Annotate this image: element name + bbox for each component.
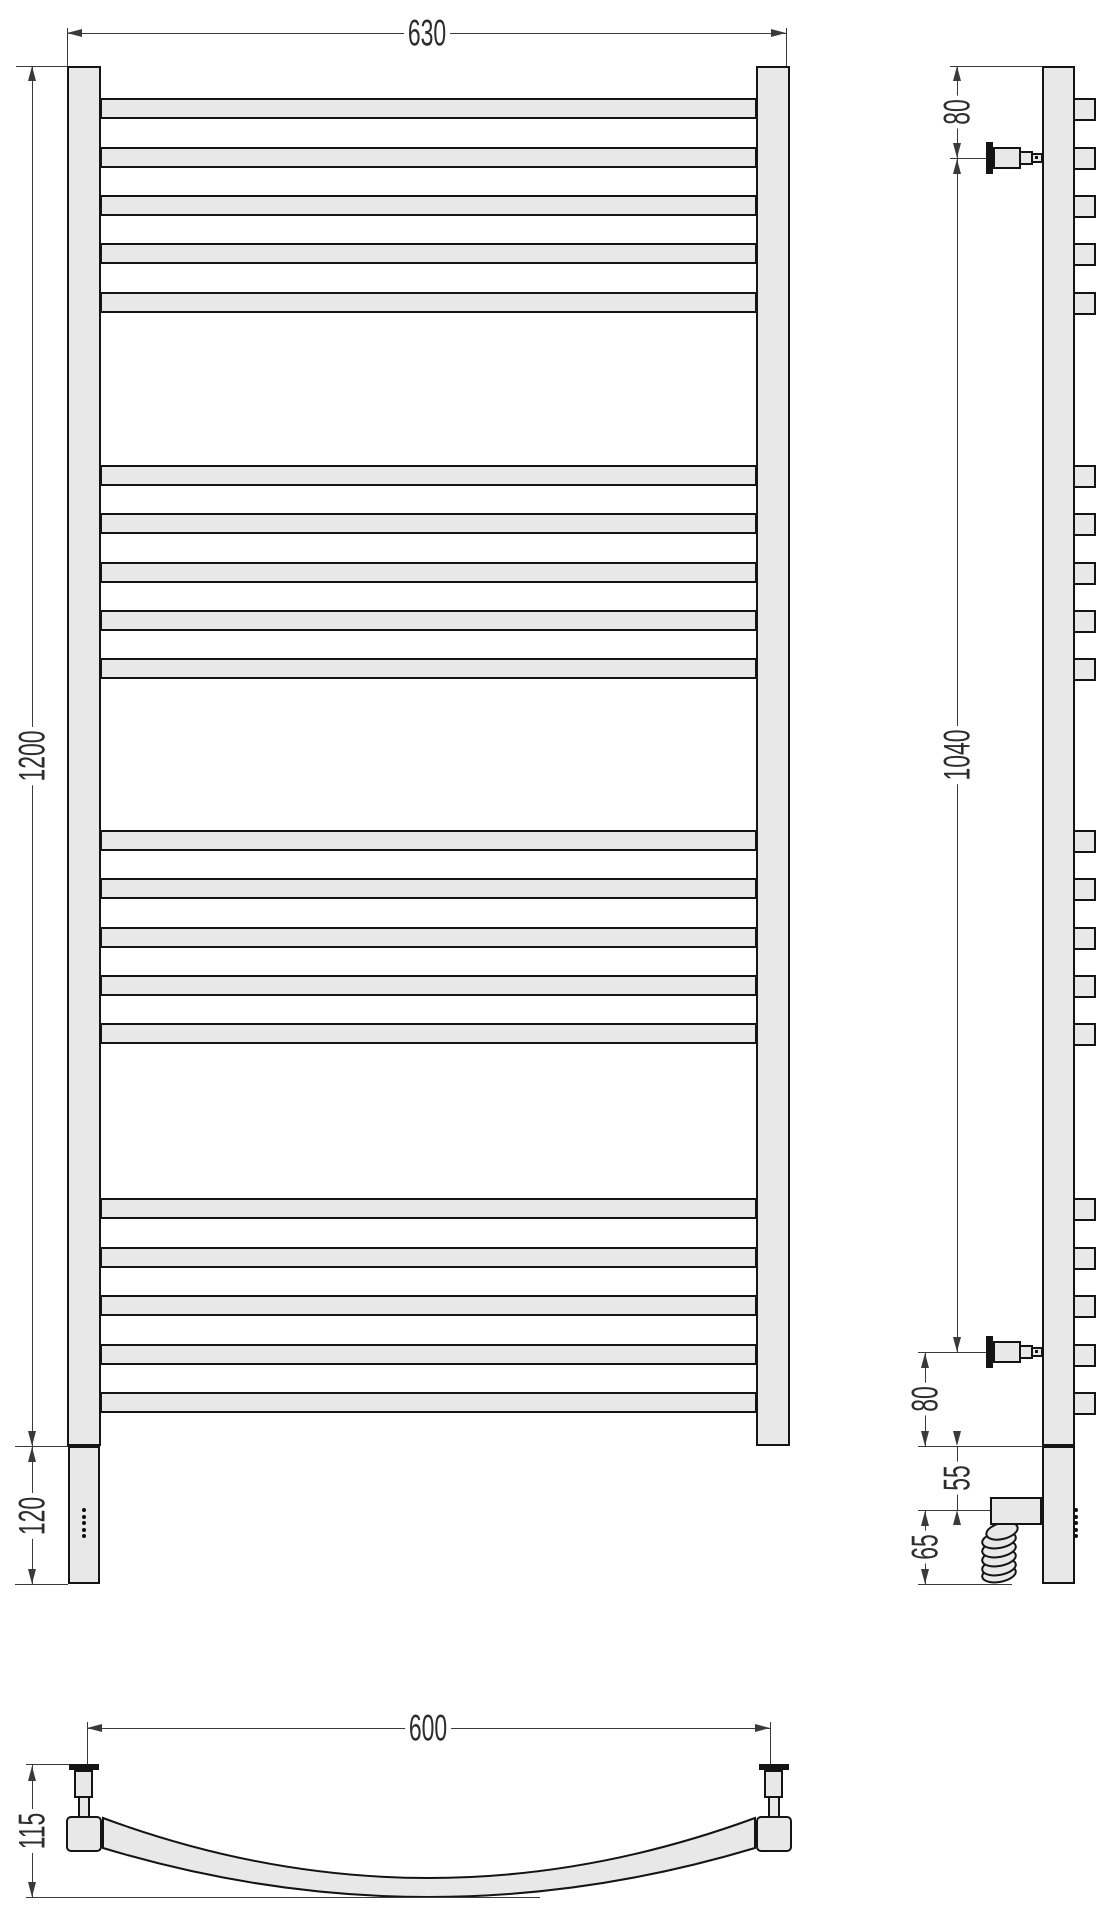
arrow-65-up <box>921 1511 929 1526</box>
rung <box>100 975 757 996</box>
lower-bracket-flange <box>986 1336 993 1368</box>
arrow-120-top <box>28 1447 36 1462</box>
arrow-115-up <box>28 1766 36 1781</box>
heater-indicator-dot <box>1074 1508 1078 1512</box>
dim-label-heater-element: 65 <box>905 1531 946 1564</box>
arrow-1040-down <box>953 1337 961 1352</box>
side-heater-section <box>1042 1446 1075 1584</box>
rung <box>100 292 757 313</box>
arrow-115-down <box>28 1882 36 1897</box>
bottom-right-corner-block <box>756 1816 792 1852</box>
dim-label-heater-section: 120 <box>12 1493 53 1539</box>
heater-indicator-dot <box>82 1515 86 1519</box>
rung <box>100 658 757 679</box>
upper-bracket-body <box>993 147 1021 169</box>
lower-bracket-body <box>993 1341 1021 1363</box>
front-right-post <box>756 66 790 1446</box>
upper-bracket-pin <box>1035 156 1038 159</box>
arrow-55-top-outside <box>953 1431 961 1446</box>
rung <box>100 1344 757 1365</box>
rung <box>100 98 757 119</box>
front-left-post <box>67 66 101 1446</box>
bottom-left-bracket-neck <box>78 1796 90 1818</box>
arrow-55-bottom-outside <box>953 1510 961 1525</box>
heater-indicator-dot <box>82 1534 86 1538</box>
arrow-top80-up <box>953 66 961 81</box>
heater-cartridge-housing <box>990 1497 1042 1525</box>
rung <box>100 513 757 534</box>
rung <box>100 465 757 486</box>
arrow-bottom80-down <box>921 1431 929 1446</box>
bottom-right-bracket-neck <box>768 1796 780 1818</box>
dim-label-overall-height: 1200 <box>12 727 53 785</box>
rung <box>100 1023 757 1044</box>
ext-line-post-bottom-side <box>918 1446 1042 1447</box>
arrow-bottom80-up <box>921 1353 929 1368</box>
arrow-600-right <box>755 1724 770 1732</box>
ext-line-120-bottom <box>15 1584 68 1585</box>
rung <box>100 878 757 899</box>
ext-line-115-bottom <box>26 1897 540 1898</box>
bottom-left-bracket-body <box>74 1770 93 1798</box>
rung <box>100 610 757 631</box>
bottom-left-corner-block <box>66 1816 102 1852</box>
bottom-right-bracket-body <box>764 1770 783 1798</box>
arrow-120-bottom <box>28 1569 36 1584</box>
dim-label-mount-centers: 600 <box>405 1708 451 1749</box>
heater-indicator-dot <box>82 1528 86 1532</box>
upper-bracket-flange <box>986 142 993 174</box>
rung <box>100 927 757 948</box>
curved-shapes-layer <box>0 0 1116 1920</box>
arrow-65-down <box>921 1569 929 1584</box>
rung <box>100 1198 757 1219</box>
rung <box>100 1295 757 1316</box>
ext-line-top80-top <box>950 66 1042 67</box>
dim-label-union-section: 55 <box>937 1462 978 1495</box>
heater-indicator-dot <box>1074 1515 1078 1519</box>
lower-bracket-pin <box>1035 1350 1038 1353</box>
arrow-600-left <box>87 1724 102 1732</box>
dim-label-overall-width: 630 <box>404 13 450 54</box>
heater-cable-coil <box>981 1519 1020 1584</box>
rung <box>100 147 757 168</box>
arrow-630-right <box>771 29 786 37</box>
arrow-top80-down <box>953 143 961 158</box>
heater-indicator-dot <box>82 1521 86 1525</box>
ext-line-1200-top <box>16 66 67 67</box>
dim-line-80-1040 <box>957 66 958 1352</box>
towel-rail-dimension-drawing: 630 1200 120 80 1040 80 55 <box>0 0 1116 1920</box>
bowed-tube-bottom-view <box>103 1818 755 1897</box>
rung <box>100 1392 757 1413</box>
ext-line-630-right <box>786 28 787 66</box>
rung <box>100 830 757 851</box>
dim-label-depth: 115 <box>12 1809 53 1853</box>
arrow-1200-bottom <box>28 1431 36 1446</box>
ext-line-600-right <box>770 1722 771 1764</box>
heater-indicator-dot <box>1074 1528 1078 1532</box>
rung <box>100 1247 757 1268</box>
rung <box>100 562 757 583</box>
dim-label-top-bracket-offset: 80 <box>937 96 978 129</box>
dim-label-bottom-bracket-offset: 80 <box>905 1383 946 1416</box>
dim-label-bracket-span: 1040 <box>937 726 978 784</box>
arrow-1200-top <box>28 66 36 81</box>
heater-indicator-dot <box>1074 1534 1078 1538</box>
side-post-bar <box>1042 66 1075 1446</box>
rung <box>100 243 757 264</box>
heater-indicator-dot <box>82 1508 86 1512</box>
rung <box>100 195 757 216</box>
ext-line-1200-bottom <box>15 1446 68 1447</box>
arrow-1040-up <box>953 159 961 174</box>
ext-line-heater-bottom <box>918 1584 1012 1585</box>
heater-indicator-dot <box>1074 1521 1078 1525</box>
arrow-630-left <box>67 29 82 37</box>
